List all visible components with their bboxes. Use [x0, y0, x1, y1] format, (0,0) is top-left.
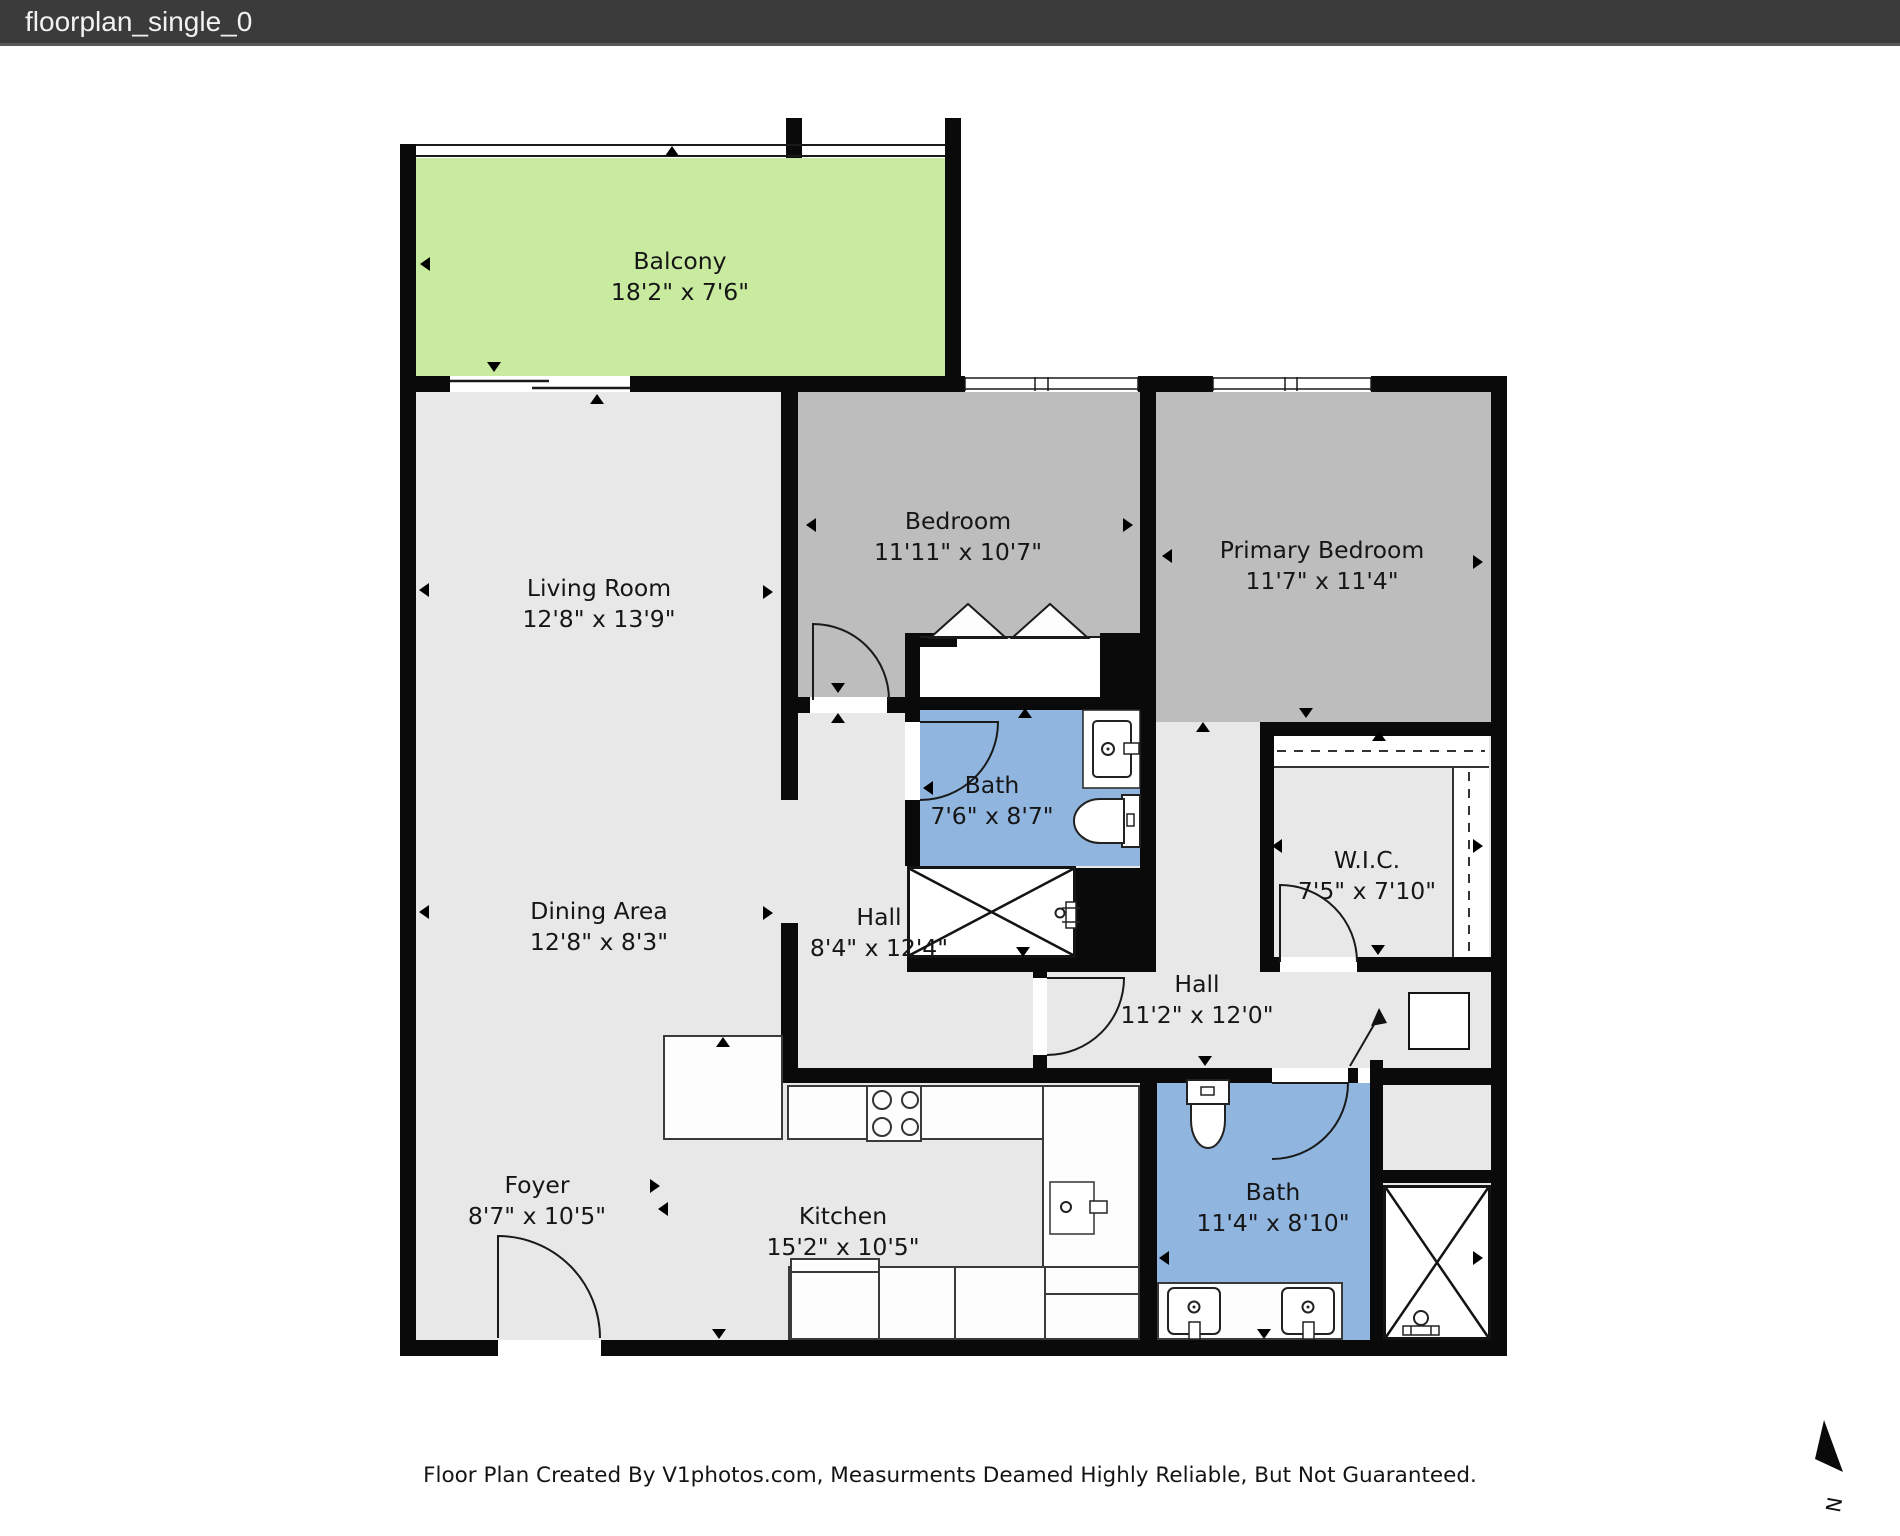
- room-dims: 12'8" x 8'3": [530, 927, 668, 958]
- compass-label: N: [1820, 1495, 1846, 1514]
- room-name: W.I.C.: [1298, 845, 1436, 876]
- refrigerator: [790, 1258, 880, 1340]
- dim-arrow: [419, 583, 429, 597]
- wic-shelf-right: [1452, 768, 1489, 957]
- room-label-bath-upper: Bath 7'6" x 8'7": [930, 770, 1053, 832]
- dim-arrow: [831, 683, 845, 693]
- dim-arrow: [712, 1329, 726, 1339]
- dim-arrow: [419, 905, 429, 919]
- dim-arrow: [487, 362, 501, 372]
- room-dims: 18'2" x 7'6": [611, 277, 749, 308]
- north-arrow-icon: N: [1790, 1402, 1900, 1522]
- room-dims: 7'5" x 7'10": [1298, 876, 1436, 907]
- room-name: Foyer: [468, 1170, 606, 1201]
- dim-arrow: [1372, 731, 1386, 741]
- room-name: Balcony: [611, 246, 749, 277]
- dim-arrow: [1196, 722, 1210, 732]
- wall: [1370, 1060, 1383, 1340]
- dim-arrow: [1473, 1251, 1483, 1265]
- room-dims: 12'8" x 13'9": [522, 604, 675, 635]
- hall-closet-opening: [1358, 1068, 1370, 1083]
- bath-lower-vanity: [1157, 1282, 1343, 1340]
- room-label-bedroom: Bedroom 11'11" x 10'7": [874, 506, 1042, 568]
- dim-arrow: [1198, 1056, 1212, 1066]
- wall: [1348, 1068, 1358, 1083]
- wall: [781, 697, 810, 713]
- room-name: Hall: [810, 902, 948, 933]
- room-label-foyer: Foyer 8'7" x 10'5": [468, 1170, 606, 1232]
- bath-lower-door-opening: [1272, 1068, 1348, 1083]
- wall: [781, 923, 798, 1083]
- hall-door-opening: [1033, 978, 1047, 1055]
- room-dims: 11'2" x 12'0": [1120, 1000, 1273, 1031]
- room-dims: 7'6" x 8'7": [930, 801, 1053, 832]
- dim-arrow: [1016, 947, 1030, 957]
- dim-arrow: [1371, 945, 1385, 955]
- dim-arrow: [1257, 1329, 1271, 1339]
- dim-arrow: [1162, 549, 1172, 563]
- dim-arrow: [658, 1202, 668, 1216]
- wall: [907, 633, 957, 647]
- dim-arrow: [763, 585, 773, 599]
- room-dims: 15'2" x 10'5": [766, 1232, 919, 1263]
- room-name: Hall: [1120, 969, 1273, 1000]
- room-dims: 8'4" x 12'4": [810, 933, 948, 964]
- room-dims: 11'11" x 10'7": [874, 537, 1042, 568]
- wall: [1076, 868, 1140, 972]
- room-name: Kitchen: [766, 1201, 919, 1232]
- wic-rod-line: [1277, 750, 1485, 752]
- dim-arrow: [1272, 839, 1282, 853]
- room-label-dining-area: Dining Area 12'8" x 8'3": [530, 896, 668, 958]
- dim-arrow: [831, 713, 845, 723]
- dim-arrow: [1123, 518, 1133, 532]
- wall: [1370, 1170, 1491, 1183]
- room-dims: 11'7" x 11'4": [1220, 566, 1425, 597]
- room-label-kitchen: Kitchen 15'2" x 10'5": [766, 1201, 919, 1263]
- room-label-bath-lower: Bath 11'4" x 8'10": [1196, 1177, 1349, 1239]
- footer-disclaimer: Floor Plan Created By V1photos.com, Meas…: [0, 1463, 1900, 1488]
- wall: [1140, 1068, 1157, 1340]
- dim-arrow: [1473, 839, 1483, 853]
- room-name: Dining Area: [530, 896, 668, 927]
- dim-arrow: [763, 906, 773, 920]
- room-label-wic: W.I.C. 7'5" x 7'10": [1298, 845, 1436, 907]
- title-bar: floorplan_single_0: [0, 0, 1900, 46]
- wall: [945, 118, 961, 376]
- wall: [1491, 376, 1507, 1356]
- dim-arrow: [1473, 555, 1483, 569]
- room-label-hall-upper: Hall 8'4" x 12'4": [810, 902, 948, 964]
- room-name: Bath: [1196, 1177, 1349, 1208]
- room-label-living-room: Living Room 12'8" x 13'9": [522, 573, 675, 635]
- room-dims: 8'7" x 10'5": [468, 1201, 606, 1232]
- balcony-slider-opening: [450, 376, 630, 392]
- room-label-primary-bedroom: Primary Bedroom 11'7" x 11'4": [1220, 535, 1425, 597]
- window-title: floorplan_single_0: [25, 0, 252, 43]
- wall: [786, 118, 802, 158]
- bedroom-window-opening: [965, 376, 1138, 392]
- room-name: Bath: [930, 770, 1053, 801]
- entry-door-opening: [498, 1340, 601, 1356]
- wic-rod-line: [1468, 772, 1470, 954]
- wall: [1383, 1068, 1491, 1085]
- wall: [781, 1068, 1272, 1083]
- dim-arrow: [420, 257, 430, 271]
- dim-arrow: [590, 394, 604, 404]
- wall: [400, 144, 416, 1356]
- dim-arrow: [806, 518, 816, 532]
- wall: [781, 392, 798, 800]
- dim-arrow: [665, 146, 679, 156]
- dim-arrow: [1018, 708, 1032, 718]
- kitchen-peninsula: [663, 1035, 783, 1140]
- room-name: Primary Bedroom: [1220, 535, 1425, 566]
- hall-cabinet-box: [1408, 992, 1470, 1050]
- dim-arrow: [650, 1179, 660, 1193]
- balcony-rail-band: [416, 142, 945, 158]
- primary-window-opening: [1213, 376, 1371, 392]
- wall: [1140, 392, 1156, 972]
- dim-arrow: [1299, 708, 1313, 718]
- stove: [866, 1085, 922, 1142]
- room-label-balcony: Balcony 18'2" x 7'6": [611, 246, 749, 308]
- dim-arrow: [716, 1037, 730, 1047]
- room-label-hall-lower: Hall 11'2" x 12'0": [1120, 969, 1273, 1031]
- bedroom-door-opening: [810, 697, 887, 713]
- room-dims: 11'4" x 8'10": [1196, 1208, 1349, 1239]
- wic-door-opening: [1280, 957, 1357, 972]
- bath-upper-door-opening: [905, 722, 920, 800]
- room-name: Bedroom: [874, 506, 1042, 537]
- dim-arrow: [1159, 1251, 1169, 1265]
- room-name: Living Room: [522, 573, 675, 604]
